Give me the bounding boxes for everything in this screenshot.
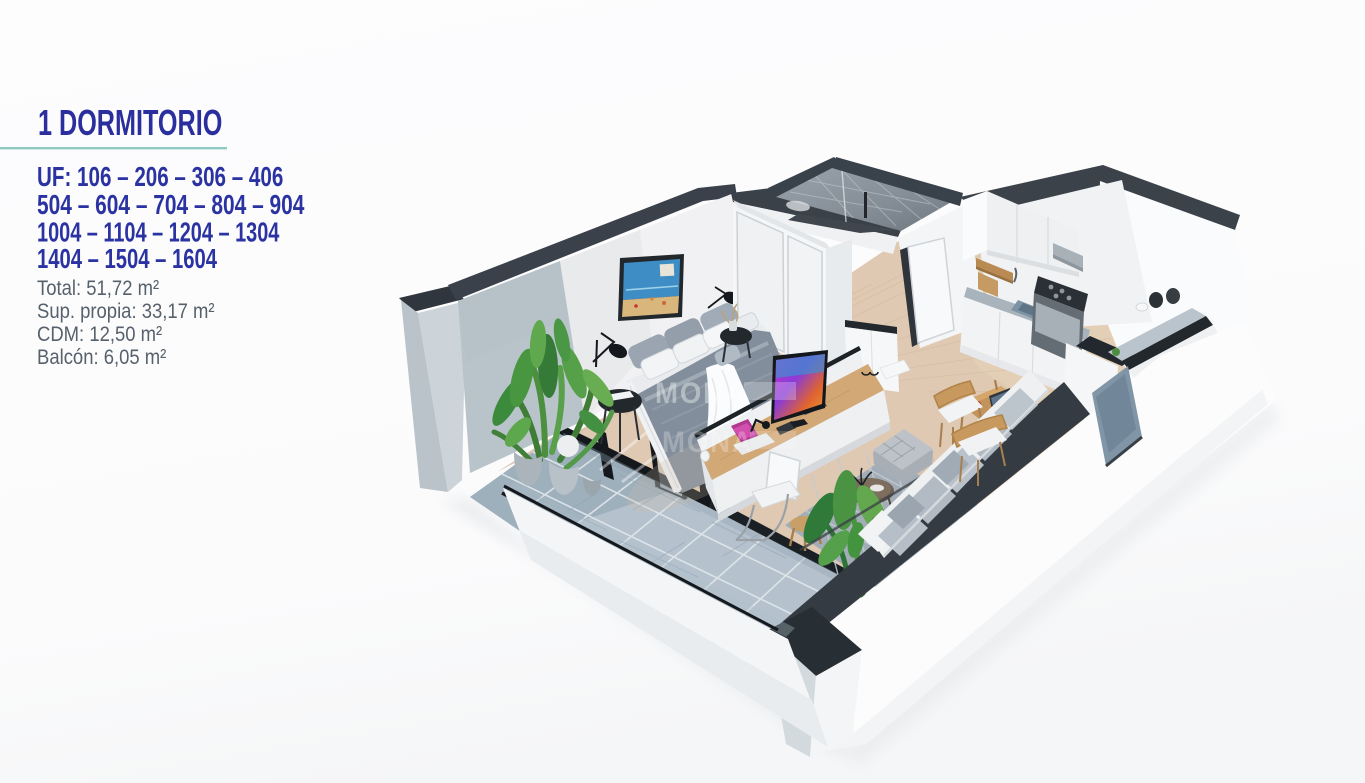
svg-text:Total: 51,72 m²: Total: 51,72 m²	[37, 277, 160, 300]
svg-text:Balcón: 6,05 m²: Balcón: 6,05 m²	[37, 346, 167, 369]
svg-text:1 DORMITORIO: 1 DORMITORIO	[38, 103, 222, 144]
svg-text:1404 – 1504 – 1604: 1404 – 1504 – 1604	[37, 244, 217, 275]
svg-text:Sup. propia: 33,17 m²: Sup. propia: 33,17 m²	[37, 300, 215, 323]
svg-text:UF: 106 – 206 – 306 – 406: UF: 106 – 206 – 306 – 406	[37, 162, 283, 193]
svg-text:MONA: MONA	[662, 426, 754, 459]
svg-text:MONA: MONA	[655, 377, 747, 410]
svg-text:CDM: 12,50 m²: CDM: 12,50 m²	[37, 323, 163, 346]
svg-text:504 – 604 – 704 – 804 – 904: 504 – 604 – 704 – 804 – 904	[37, 190, 305, 221]
